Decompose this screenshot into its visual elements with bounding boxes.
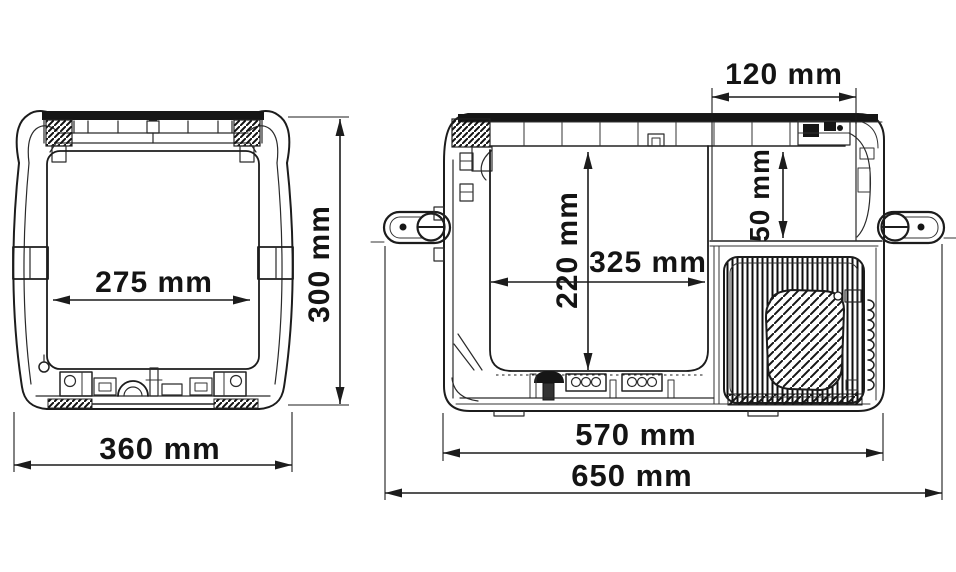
dim-side-interior-height: 220 mm [551, 152, 593, 370]
side-lid-detail [648, 134, 664, 146]
side-hinge-block [452, 119, 490, 147]
dim-side-recess-height: 50 mm [744, 148, 788, 242]
dim-front-overall-width: 360 mm [14, 412, 292, 472]
front-face-panel [47, 151, 259, 369]
drawing-canvas: 275 mm 300 mm 360 mm [0, 0, 956, 572]
front-center-pin [150, 368, 158, 396]
front-latch-pin-cap [149, 114, 157, 121]
side-handle-left [371, 212, 450, 243]
front-right-hinge-bracket [240, 146, 254, 162]
front-base-strip-left [48, 399, 92, 408]
dim-side-body-length: 570 mm [443, 413, 883, 461]
compartment-base-hatch [728, 394, 862, 405]
dim-side-overall-length-label: 650 mm [571, 458, 692, 493]
front-left-hinge [46, 120, 72, 146]
front-view: 275 mm 300 mm 360 mm [13, 111, 349, 472]
compressor-compartment [724, 257, 874, 405]
dim-front-interior-width: 275 mm [53, 266, 250, 305]
dim-side-interior-length-label: 325 mm [589, 246, 707, 279]
dim-front-overall-height: 300 mm [288, 117, 349, 405]
front-lid-ribs [74, 121, 232, 133]
dim-front-interior-width-label: 275 mm [95, 266, 213, 299]
drain-plug [534, 371, 564, 383]
side-handle-right [878, 212, 956, 243]
front-drain-dome [118, 381, 148, 396]
front-right-hinge [234, 120, 260, 146]
side-front-wedge [454, 334, 482, 370]
dim-side-recess-width: 120 mm [712, 58, 856, 240]
front-side-handle-right [258, 247, 293, 279]
side-lid [452, 114, 882, 180]
front-base-strip-right [214, 399, 258, 408]
side-latch-assembly [798, 121, 874, 240]
front-side-handle-left [13, 247, 48, 279]
front-latch-pin [147, 121, 159, 133]
dimension-diagram: 275 mm 300 mm 360 mm [0, 0, 956, 572]
front-left-hinge-bracket [52, 146, 66, 162]
dim-side-interior-height-label: 220 mm [551, 191, 584, 309]
front-body-shell [13, 111, 292, 409]
side-view: 120 mm 50 mm 220 mm 325 mm 570 mm [371, 58, 956, 500]
front-base [36, 368, 270, 408]
dim-side-recess-height-label: 50 mm [744, 148, 775, 242]
dim-side-interior-length: 325 mm [491, 246, 707, 287]
condenser-fins [868, 300, 874, 390]
dim-front-overall-width-label: 360 mm [99, 431, 220, 466]
front-lid [42, 111, 264, 162]
compressor-body [766, 290, 844, 390]
dim-side-body-length-label: 570 mm [575, 417, 696, 452]
dim-side-recess-width-label: 120 mm [725, 58, 843, 91]
dim-front-overall-height-label: 300 mm [303, 205, 336, 323]
